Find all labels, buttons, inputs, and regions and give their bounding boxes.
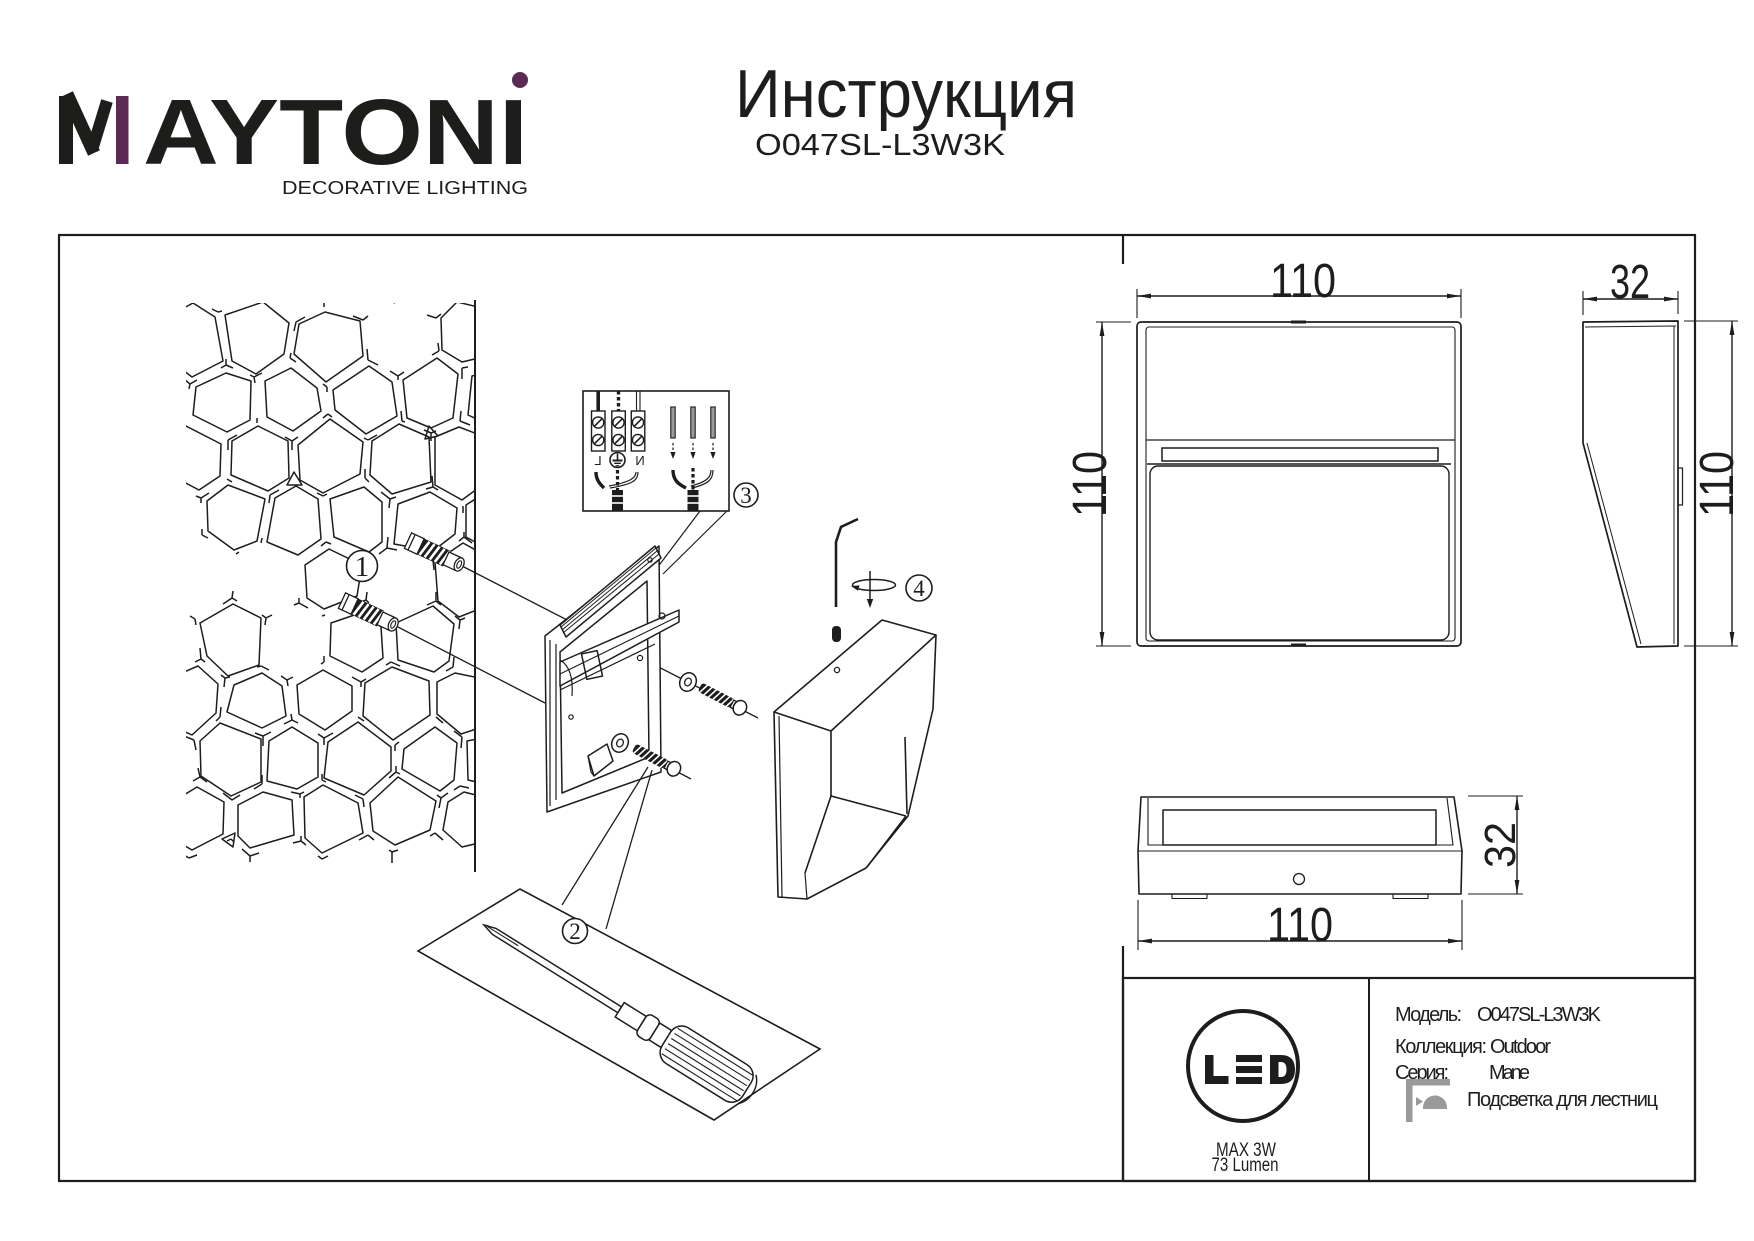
svg-text:N: N xyxy=(635,453,644,468)
svg-text:O047SL-L3W3K: O047SL-L3W3K xyxy=(755,127,1005,162)
svg-text:L: L xyxy=(594,453,601,468)
svg-text:110: 110 xyxy=(1691,451,1744,517)
svg-text:Outdoor: Outdoor xyxy=(1490,1036,1551,1058)
svg-text:Коллекция:: Коллекция: xyxy=(1395,1036,1487,1058)
svg-text:32: 32 xyxy=(1610,256,1650,309)
svg-text:AYTONI: AYTONI xyxy=(143,80,528,184)
svg-text:110: 110 xyxy=(1267,899,1333,952)
svg-text:DECORATIVE LIGHTING: DECORATIVE LIGHTING xyxy=(282,178,528,198)
svg-text:4: 4 xyxy=(913,576,925,601)
svg-text:110: 110 xyxy=(1064,451,1117,517)
svg-text:73 Lumen: 73 Lumen xyxy=(1212,1155,1279,1176)
svg-text:Подсветка для лестниц: Подсветка для лестниц xyxy=(1467,1089,1658,1111)
svg-text:2: 2 xyxy=(569,919,581,944)
svg-text:O047SL-L3W3K: O047SL-L3W3K xyxy=(1477,1004,1602,1026)
svg-text:3: 3 xyxy=(740,483,752,508)
svg-text:1: 1 xyxy=(355,551,370,583)
svg-text:Инструкция: Инструкция xyxy=(735,56,1077,132)
svg-text:Модель:: Модель: xyxy=(1395,1004,1462,1026)
svg-text:32: 32 xyxy=(1476,822,1525,868)
svg-text:Mane: Mane xyxy=(1489,1062,1530,1084)
svg-text:110: 110 xyxy=(1270,255,1336,308)
